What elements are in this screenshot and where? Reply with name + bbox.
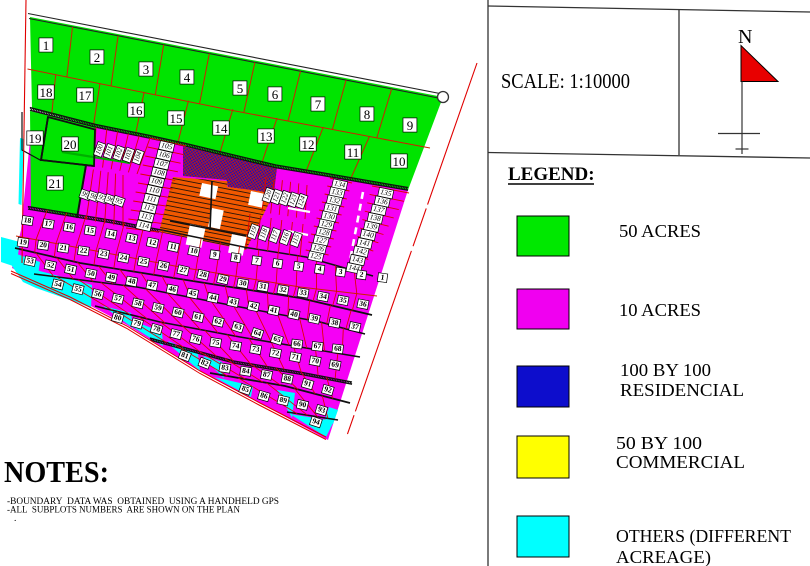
svg-text:8: 8 <box>364 107 371 122</box>
svg-text:9: 9 <box>407 118 414 133</box>
svg-text:19: 19 <box>29 131 42 146</box>
svg-text:2: 2 <box>94 50 101 65</box>
svg-text:17: 17 <box>79 88 93 103</box>
svg-text:4: 4 <box>184 70 191 85</box>
svg-text:-ALL SUBPLOTS NUMBERS ARE SH: -ALL SUBPLOTS NUMBERS ARE SHOWN ON THE P… <box>7 506 240 516</box>
svg-text:18: 18 <box>40 85 53 100</box>
svg-text:100 BY 100: 100 BY 100 <box>620 360 711 380</box>
svg-text:22: 22 <box>79 245 88 255</box>
svg-text:50 BY 100: 50 BY 100 <box>616 433 702 453</box>
svg-text:15: 15 <box>170 111 183 126</box>
svg-text:20: 20 <box>39 240 48 250</box>
svg-text:SCALE: 1:10000: SCALE: 1:10000 <box>501 69 630 93</box>
svg-text:66: 66 <box>293 339 302 349</box>
svg-text:10 ACRES: 10 ACRES <box>619 300 701 320</box>
svg-text:3: 3 <box>143 62 150 77</box>
svg-text:RESIDENCIAL: RESIDENCIAL <box>620 380 744 400</box>
svg-text:NOTES:: NOTES: <box>4 454 109 489</box>
svg-text:12: 12 <box>302 137 315 152</box>
svg-text:16: 16 <box>130 103 144 118</box>
svg-text:COMMERCIAL: COMMERCIAL <box>616 452 745 472</box>
svg-text:20: 20 <box>64 137 77 152</box>
svg-text:50 ACRES: 50 ACRES <box>619 221 701 241</box>
svg-text:.: . <box>14 514 16 524</box>
svg-text:21: 21 <box>49 176 62 191</box>
svg-text:7: 7 <box>315 97 322 112</box>
svg-text:N: N <box>738 26 752 48</box>
svg-text:67: 67 <box>313 341 322 351</box>
svg-text:ACREAGE): ACREAGE) <box>616 547 711 566</box>
svg-text:LEGEND:: LEGEND: <box>508 164 595 185</box>
svg-text:OTHERS (DIFFERENT: OTHERS (DIFFERENT <box>616 526 791 547</box>
svg-text:13: 13 <box>260 129 273 144</box>
svg-text:11: 11 <box>347 145 360 160</box>
svg-text:14: 14 <box>215 121 229 136</box>
svg-text:19: 19 <box>19 237 28 247</box>
svg-text:1: 1 <box>43 38 50 53</box>
svg-text:10: 10 <box>393 154 406 169</box>
svg-text:68: 68 <box>334 343 343 353</box>
svg-text:6: 6 <box>272 87 279 102</box>
svg-text:21: 21 <box>59 243 68 253</box>
svg-text:5: 5 <box>237 81 244 96</box>
